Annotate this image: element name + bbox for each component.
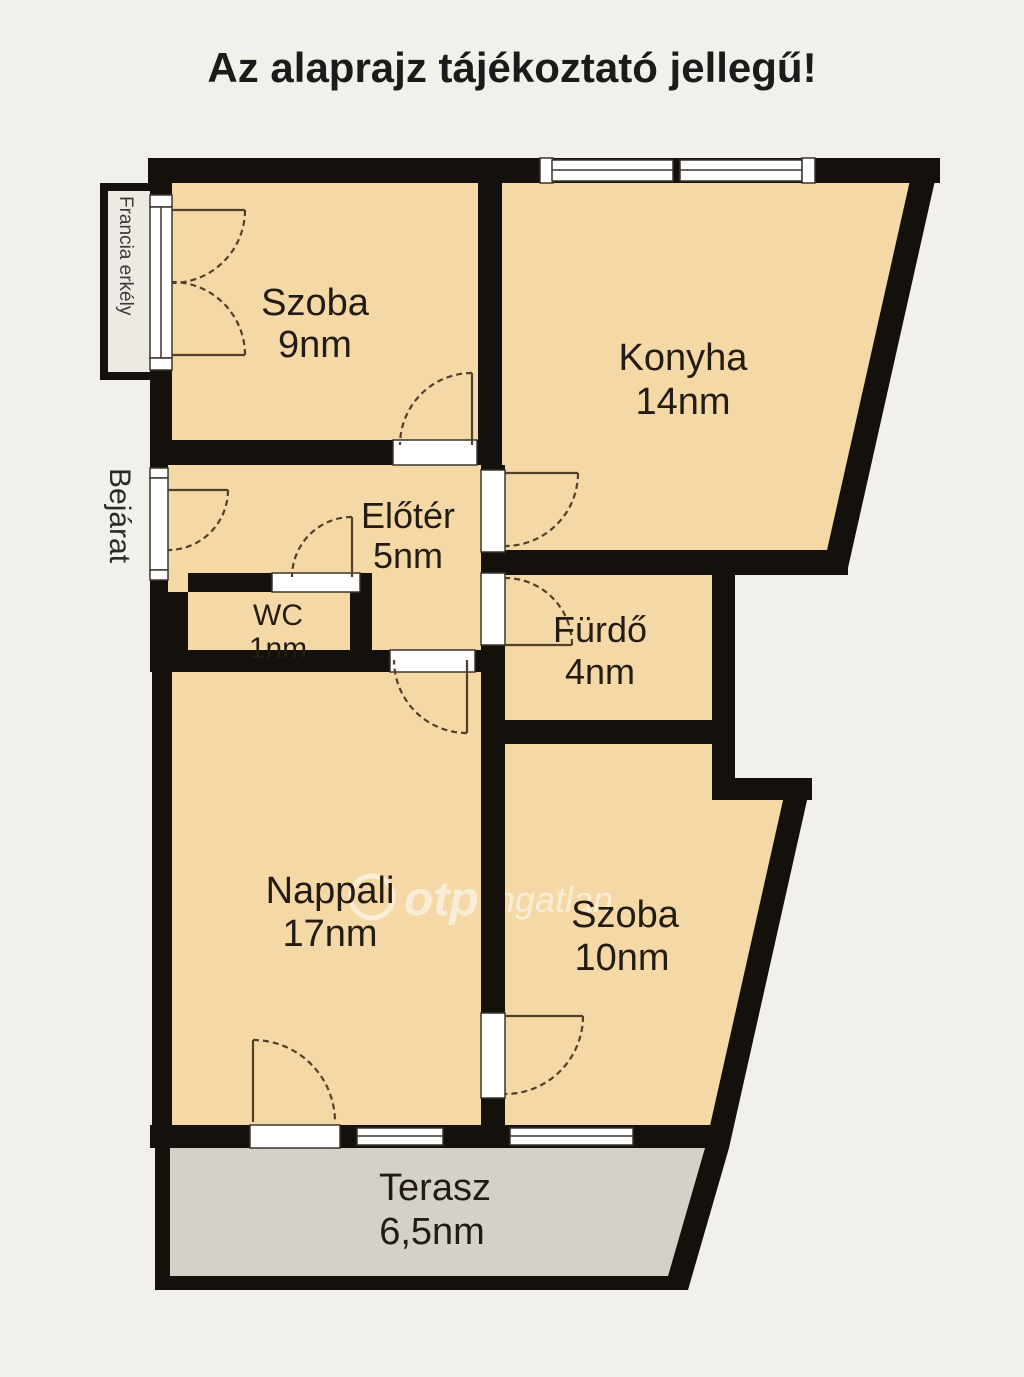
wall-terrace-bottom (155, 1276, 677, 1290)
entrance-cap (150, 468, 168, 478)
label-nappali-area: 17nm (282, 913, 377, 955)
entrance-threshold (150, 478, 168, 570)
window-cap (802, 158, 815, 183)
entrance-cap (150, 570, 168, 580)
wall-szoba9-konyha (478, 183, 502, 465)
door-szoba9-threshold (393, 440, 477, 465)
label-french-balcony: Francia erkély (115, 196, 136, 316)
label-terasz-area: 6,5nm (379, 1211, 485, 1253)
label-szoba10-name: Szoba (571, 894, 680, 936)
label-szoba10-area: 10nm (574, 937, 669, 979)
door-nappali-threshold (390, 650, 475, 672)
door-terasz-threshold (250, 1125, 340, 1148)
floorplan-page: Az alaprajz tájékoztató jellegű! otp ing… (0, 0, 1024, 1377)
label-szoba9-name: Szoba (261, 282, 370, 324)
french-door-cap (150, 195, 172, 207)
wall-furdo-bottom (481, 720, 735, 744)
label-eloter-area: 5nm (373, 535, 443, 576)
wall-left-lower (152, 650, 172, 1148)
label-terasz-name: Terasz (379, 1167, 491, 1209)
label-konyha-name: Konyha (619, 337, 749, 379)
wall-balcony-left (100, 183, 108, 380)
window-cap (540, 158, 553, 183)
door-wc-threshold (272, 573, 360, 592)
label-wc-name: WC (253, 599, 303, 632)
door-szoba10-threshold (481, 1013, 505, 1098)
label-entrance: Bejárat (103, 468, 136, 564)
label-konyha-area: 14nm (635, 381, 730, 423)
floorplan-svg: Az alaprajz tájékoztató jellegű! otp ing… (0, 0, 1024, 1377)
wall-balcony-bottom (100, 372, 152, 380)
watermark-brand: otp (404, 873, 479, 926)
wall-terrace-left (155, 1148, 170, 1290)
label-eloter-name: Előtér (361, 495, 455, 536)
label-furdo-area: 4nm (565, 651, 635, 692)
label-furdo-name: Fürdő (553, 609, 647, 650)
room-floor-eloter (152, 440, 503, 672)
door-konyha-threshold (481, 470, 505, 552)
label-wc-area: 1nm (249, 632, 307, 665)
wall-konyha-bottom (481, 550, 848, 575)
label-nappali-name: Nappali (266, 870, 395, 912)
door-furdo-threshold (481, 573, 505, 645)
page-title: Az alaprajz tájékoztató jellegű! (207, 44, 816, 91)
wall-furdo-right (712, 550, 735, 800)
french-door-cap (150, 358, 172, 370)
label-szoba9-area: 9nm (278, 324, 352, 366)
